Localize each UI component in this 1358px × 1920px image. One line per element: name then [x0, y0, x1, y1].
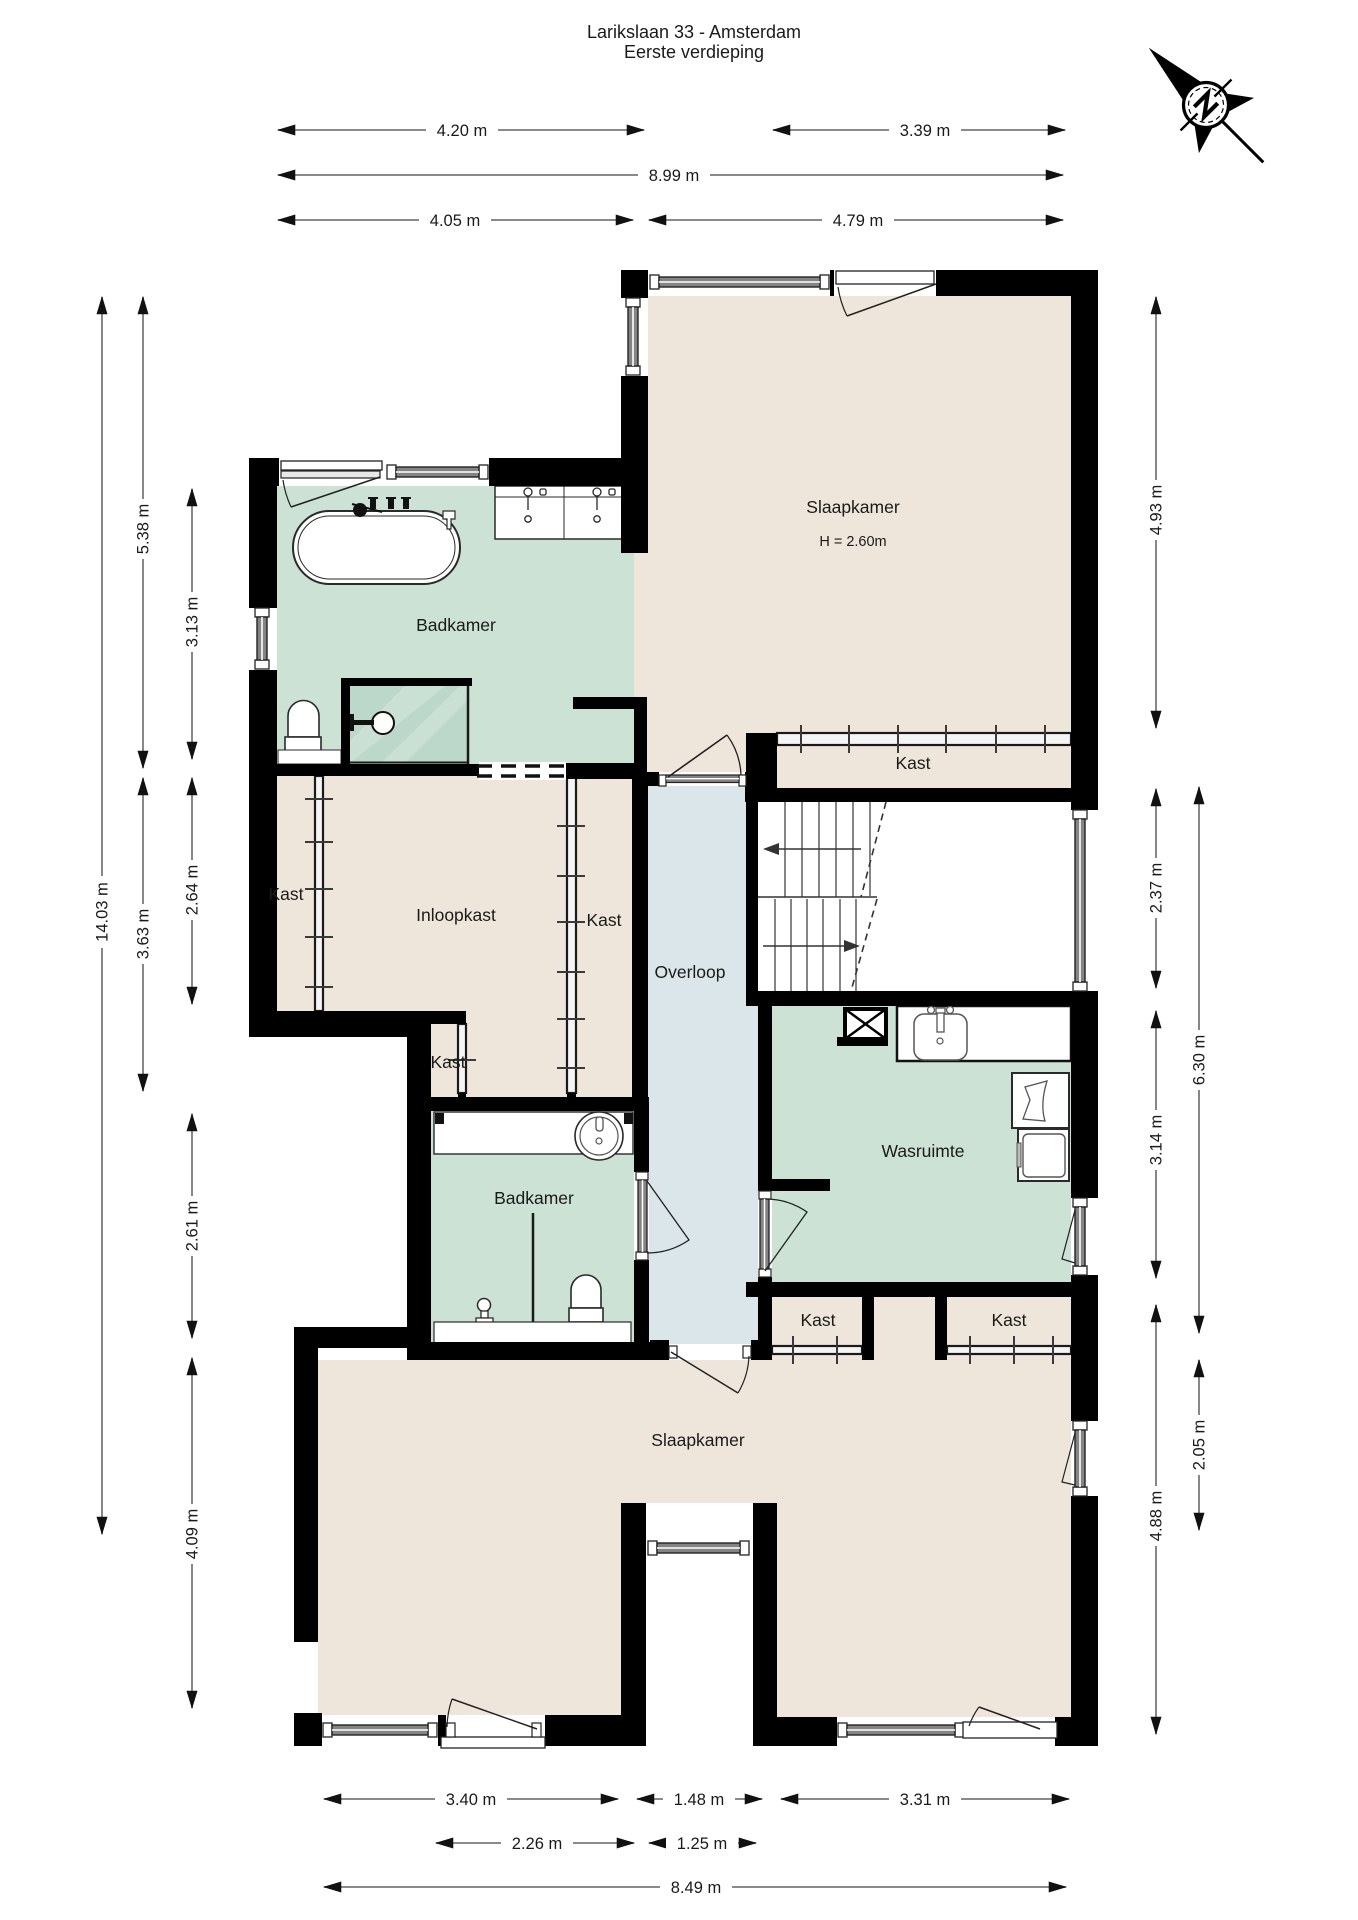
- svg-text:Badkamer: Badkamer: [494, 1188, 574, 1208]
- svg-text:2.26 m: 2.26 m: [512, 1835, 562, 1853]
- svg-text:4.20 m: 4.20 m: [437, 122, 487, 140]
- svg-text:Inloopkast: Inloopkast: [416, 905, 496, 925]
- svg-text:5.38 m: 5.38 m: [135, 504, 153, 554]
- svg-text:Slaapkamer: Slaapkamer: [651, 1430, 745, 1450]
- svg-text:Kast: Kast: [268, 884, 303, 904]
- svg-text:Kast: Kast: [586, 910, 621, 930]
- svg-text:4.88 m: 4.88 m: [1148, 1491, 1166, 1541]
- svg-text:2.37 m: 2.37 m: [1148, 863, 1166, 913]
- svg-text:1.25 m: 1.25 m: [677, 1835, 727, 1853]
- svg-text:3.39 m: 3.39 m: [900, 122, 950, 140]
- svg-text:3.14 m: 3.14 m: [1148, 1115, 1166, 1165]
- svg-text:4.09 m: 4.09 m: [184, 1509, 202, 1559]
- svg-text:Eerste verdieping: Eerste verdieping: [624, 42, 764, 62]
- svg-text:14.03 m: 14.03 m: [94, 882, 112, 942]
- svg-text:Kast: Kast: [800, 1310, 835, 1330]
- svg-text:4.79 m: 4.79 m: [833, 212, 883, 230]
- svg-text:Wasruimte: Wasruimte: [882, 1141, 965, 1161]
- svg-text:Slaapkamer: Slaapkamer: [806, 497, 900, 517]
- svg-text:Kast: Kast: [430, 1052, 465, 1072]
- svg-text:H = 2.60m: H = 2.60m: [819, 534, 886, 550]
- svg-text:Larikslaan 33 - Amsterdam: Larikslaan 33 - Amsterdam: [587, 22, 801, 42]
- svg-text:1.48 m: 1.48 m: [674, 1791, 724, 1809]
- svg-text:2.64 m: 2.64 m: [184, 865, 202, 915]
- svg-text:3.13 m: 3.13 m: [184, 597, 202, 647]
- svg-text:8.49 m: 8.49 m: [671, 1879, 721, 1897]
- svg-text:3.40 m: 3.40 m: [446, 1791, 496, 1809]
- svg-text:3.31 m: 3.31 m: [900, 1791, 950, 1809]
- svg-text:2.61 m: 2.61 m: [184, 1201, 202, 1251]
- svg-text:Badkamer: Badkamer: [416, 615, 496, 635]
- svg-text:8.99 m: 8.99 m: [649, 167, 699, 185]
- svg-text:4.93 m: 4.93 m: [1148, 485, 1166, 535]
- svg-text:Overloop: Overloop: [654, 962, 725, 982]
- svg-text:2.05 m: 2.05 m: [1191, 1420, 1209, 1470]
- svg-text:6.30 m: 6.30 m: [1191, 1035, 1209, 1085]
- svg-text:3.63 m: 3.63 m: [135, 909, 153, 959]
- svg-text:4.05 m: 4.05 m: [430, 212, 480, 230]
- svg-text:Kast: Kast: [991, 1310, 1026, 1330]
- svg-text:Kast: Kast: [895, 753, 930, 773]
